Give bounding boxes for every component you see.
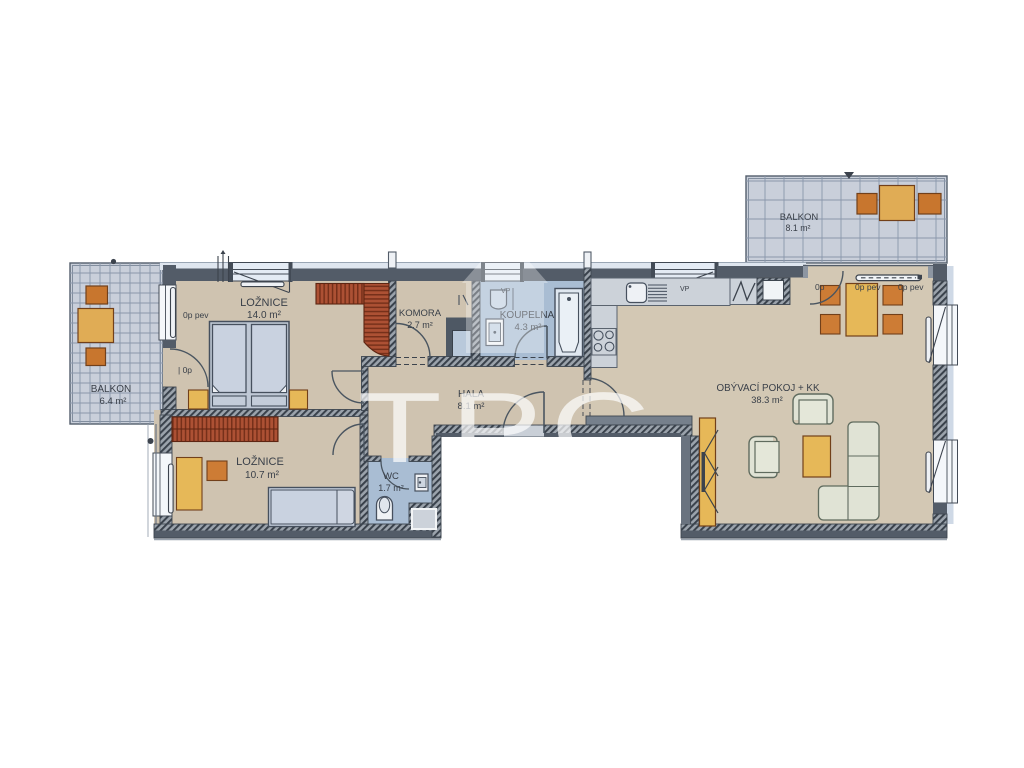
svg-text:LOŽNICE: LOŽNICE: [240, 296, 288, 309]
svg-text:14.0 m²: 14.0 m²: [247, 310, 282, 321]
svg-text:8.1 m²: 8.1 m²: [786, 223, 811, 233]
svg-text:BALKON: BALKON: [91, 384, 132, 395]
svg-text:0p pev: 0p pev: [183, 310, 209, 320]
svg-text:TPC: TPC: [358, 372, 659, 484]
svg-text:6.4 m²: 6.4 m²: [100, 396, 127, 407]
svg-text:LOŽNICE: LOŽNICE: [236, 455, 284, 468]
svg-text:10.7 m²: 10.7 m²: [245, 470, 280, 481]
svg-text:BALKON: BALKON: [780, 212, 819, 223]
svg-text:0p: 0p: [815, 282, 825, 292]
svg-text:0p pev: 0p pev: [898, 282, 924, 292]
svg-text:1.7 m²: 1.7 m²: [378, 483, 404, 493]
svg-text:0p pev: 0p pev: [855, 282, 881, 292]
svg-text:OBÝVACÍ POKOJ + KK: OBÝVACÍ POKOJ + KK: [717, 383, 820, 394]
svg-text:| 0p: | 0p: [178, 365, 192, 375]
svg-text:KOMORA: KOMORA: [399, 308, 442, 319]
svg-text:38.3 m²: 38.3 m²: [751, 395, 783, 405]
svg-text:VP: VP: [680, 286, 690, 293]
svg-text:2.7 m²: 2.7 m²: [407, 320, 433, 330]
